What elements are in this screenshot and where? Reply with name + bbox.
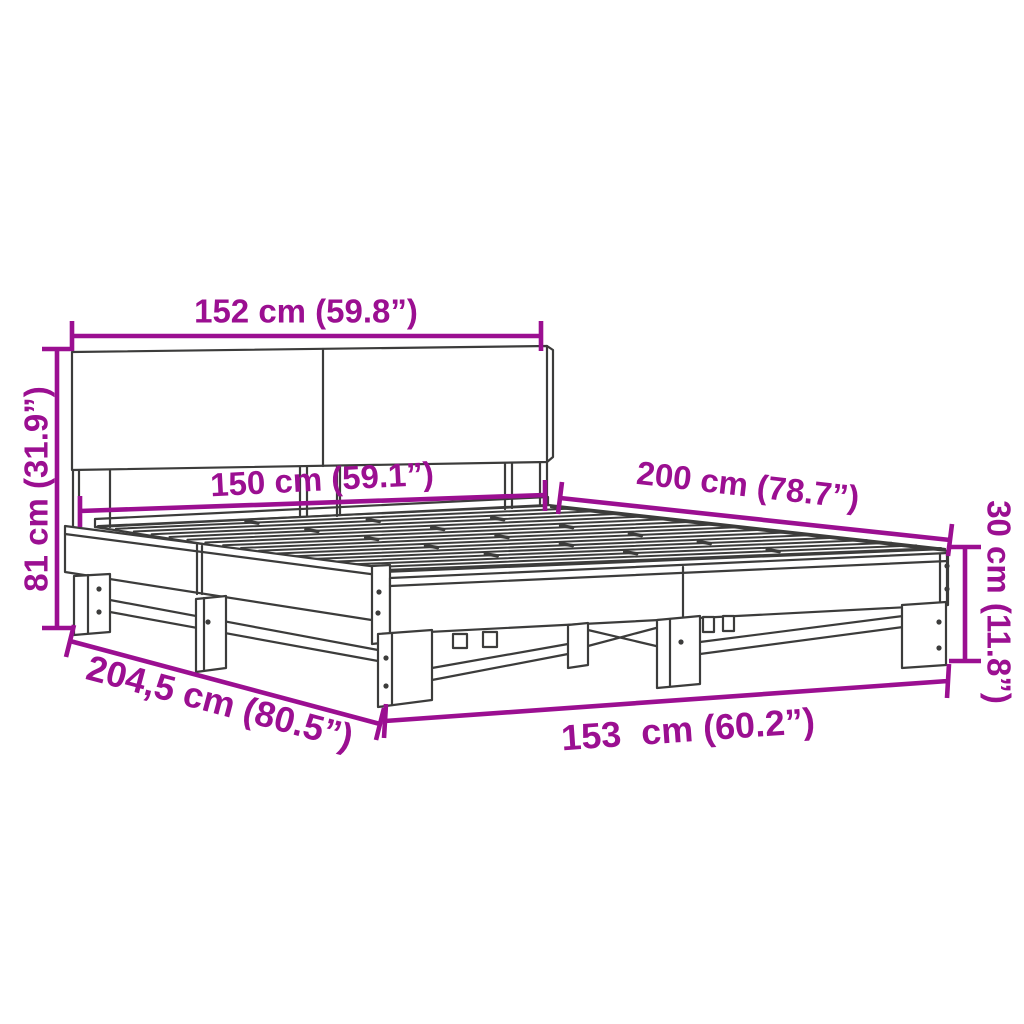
slat-clip <box>560 544 572 546</box>
dimension-height-left: 81 cm (31.9”) <box>18 349 73 628</box>
diagram-canvas: 152 cm (59.8”) 81 cm (31.9”) 150 cm (59.… <box>0 0 1024 1024</box>
bracket-mid-1 <box>703 617 714 632</box>
headboard-panels <box>72 346 547 470</box>
slat-clip <box>561 526 573 528</box>
dimension-label: 200 cm (78.7”) <box>635 454 862 516</box>
slat-clip <box>767 550 779 552</box>
slat-clip <box>496 536 508 538</box>
bed-frame-diagram: 152 cm (59.8”) 81 cm (31.9”) 150 cm (59.… <box>0 0 1024 1024</box>
dimension-label: 152 cm (59.8”) <box>194 293 418 330</box>
dimension-height-right: 30 cm (11.8”) <box>949 500 1018 704</box>
dimension-line <box>949 547 981 661</box>
slat-clip <box>492 518 504 520</box>
dimension-label: 153 cm (60.2”) <box>560 700 816 759</box>
slat-clip <box>366 538 378 540</box>
headboard <box>72 346 553 470</box>
leg-head-left <box>74 574 110 635</box>
slat-clip <box>306 529 318 531</box>
dimension-label: 81 cm (31.9”) <box>18 386 55 591</box>
leg-foot-left <box>378 630 432 707</box>
slat-clip <box>625 552 637 554</box>
bracket-mid-2 <box>723 616 734 631</box>
slat-clip <box>432 528 444 530</box>
slat-clip <box>698 542 710 544</box>
bracket-foot-1 <box>453 634 467 648</box>
slat-clip <box>485 554 497 556</box>
slat-clip <box>367 520 379 522</box>
leg-side-middle <box>196 596 226 672</box>
slat-clip <box>426 546 438 548</box>
dimension-label: 30 cm (11.8”) <box>981 500 1018 704</box>
slat-clip <box>246 521 258 523</box>
slat-clip <box>629 534 641 536</box>
corner-post-front-left <box>372 565 390 644</box>
bracket-foot-2 <box>483 632 497 647</box>
leg-foot-right <box>902 602 946 668</box>
leg-foot-small <box>568 623 588 668</box>
dimension-width-top: 152 cm (59.8”) <box>72 293 541 352</box>
leg-foot-middle <box>657 616 700 688</box>
